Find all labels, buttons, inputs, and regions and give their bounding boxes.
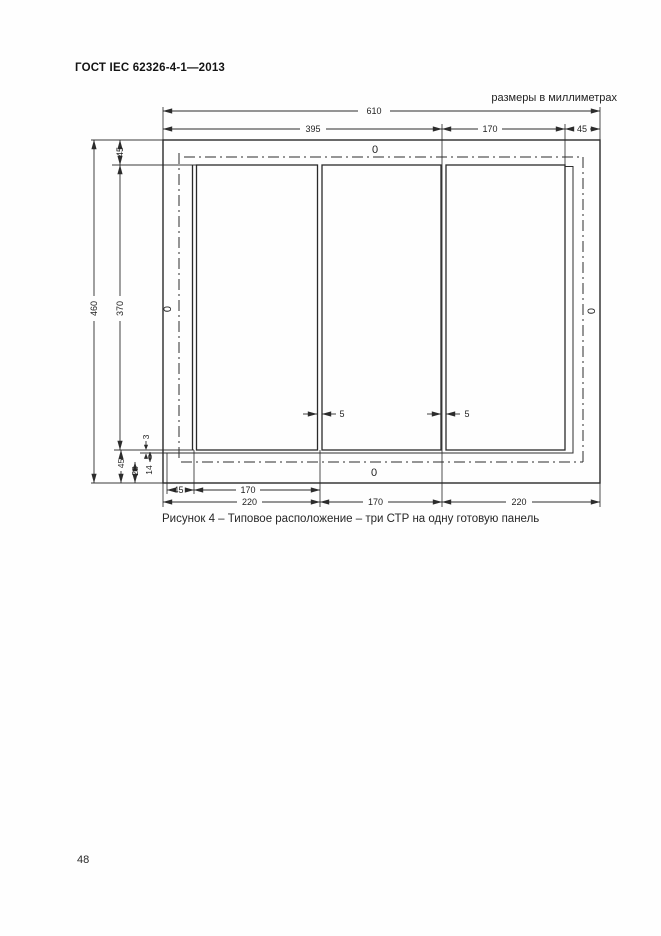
- dim-label-45-top-left: 45: [115, 147, 125, 157]
- finished-panel-outline: [163, 140, 600, 483]
- dim-label-3: 3: [141, 434, 151, 439]
- dim-label-45-bottom: 45: [173, 485, 183, 495]
- figure-caption: Рисунок 4 – Типовое расположение – три С…: [162, 513, 538, 525]
- page-number: 48: [77, 854, 89, 866]
- zero-label-bottom: 0: [371, 467, 377, 479]
- dim-label-370: 370: [115, 301, 125, 316]
- dim-label-220-right: 220: [511, 497, 526, 507]
- dim-label-14: 14: [144, 465, 154, 475]
- zero-label-right: 0: [586, 308, 598, 314]
- document-page: ГОСТ IEC 62326-4-1—2013 размеры в миллим…: [0, 0, 661, 936]
- zero-label-left: 0: [162, 306, 174, 312]
- dim-label-28: 28: [130, 466, 140, 476]
- dim-label-5-gap2: 5: [464, 409, 469, 419]
- dim-label-45-top-right: 45: [577, 124, 587, 134]
- dim-label-5-gap1: 5: [339, 409, 344, 419]
- dim-label-170-bottom-b: 170: [368, 497, 383, 507]
- working-area-frame: [163, 167, 573, 454]
- zero-reference-centerlines: [179, 153, 583, 462]
- dim-label-170-bottom-a: 170: [240, 485, 255, 495]
- dim-label-220-left: 220: [242, 497, 257, 507]
- zero-label-top: 0: [372, 144, 378, 156]
- ctp-panel-2: [322, 165, 441, 450]
- dim-label-610: 610: [366, 106, 381, 116]
- dim-label-460: 460: [89, 301, 99, 316]
- dim-label-45-bottom-left: 45: [116, 459, 126, 469]
- dim-label-170-top: 170: [482, 124, 497, 134]
- figure-4-technical-drawing: 610 395 170 45 460 45 370: [0, 0, 661, 936]
- tiny-arrowheads: [144, 445, 152, 462]
- ctp-panel-1: [197, 165, 318, 450]
- dim-label-395: 395: [305, 124, 320, 134]
- ctp-panel-3: [446, 165, 565, 450]
